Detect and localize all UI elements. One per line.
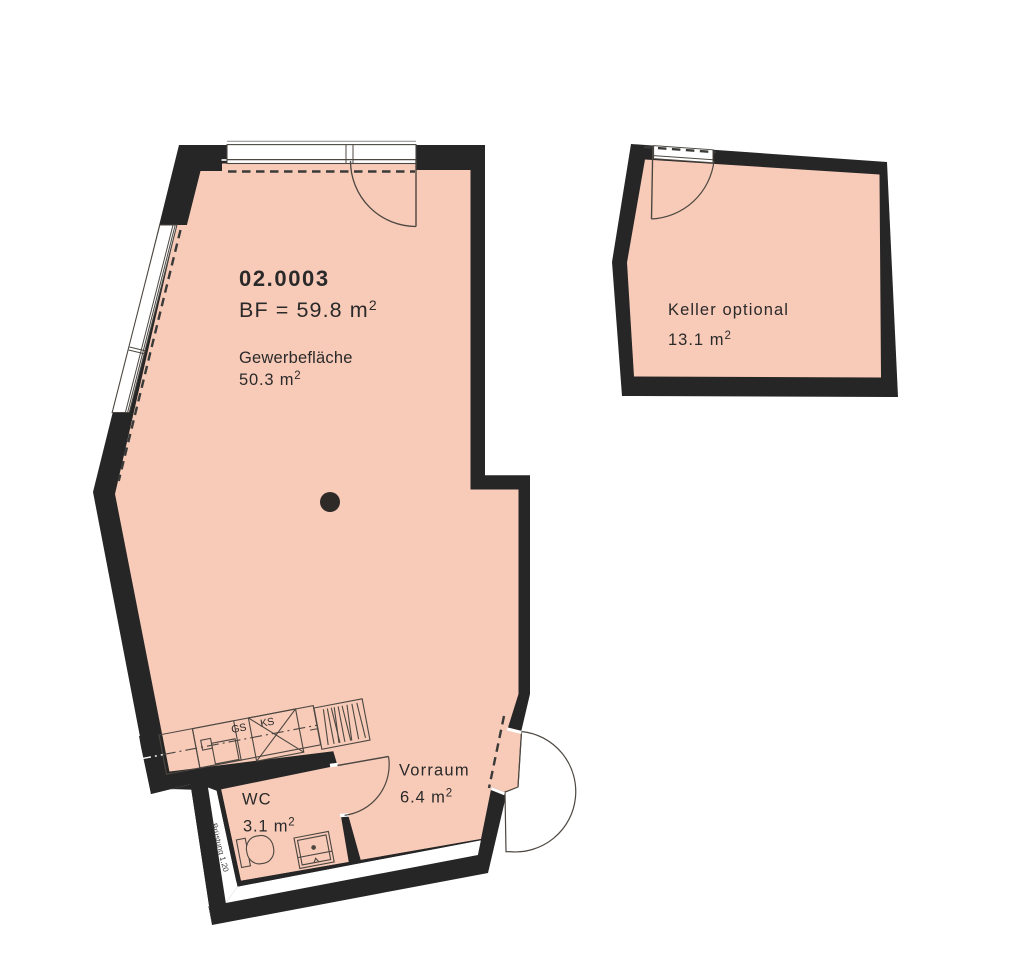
svg-text:Vorraum: Vorraum (399, 762, 470, 780)
svg-text:3.1 m2: 3.1 m2 (243, 817, 295, 836)
svg-text:13.1 m2: 13.1 m2 (668, 330, 732, 349)
svg-text:50.3 m2: 50.3 m2 (239, 370, 301, 389)
svg-text:WC: WC (242, 791, 272, 809)
svg-text:Keller optional: Keller optional (668, 301, 789, 319)
svg-text:6.4 m2: 6.4 m2 (400, 788, 453, 807)
svg-text:Gewerbefläche: Gewerbefläche (239, 349, 353, 367)
svg-text:02.0003: 02.0003 (239, 266, 330, 291)
svg-text:BF = 59.8 m2: BF = 59.8 m2 (239, 297, 378, 322)
